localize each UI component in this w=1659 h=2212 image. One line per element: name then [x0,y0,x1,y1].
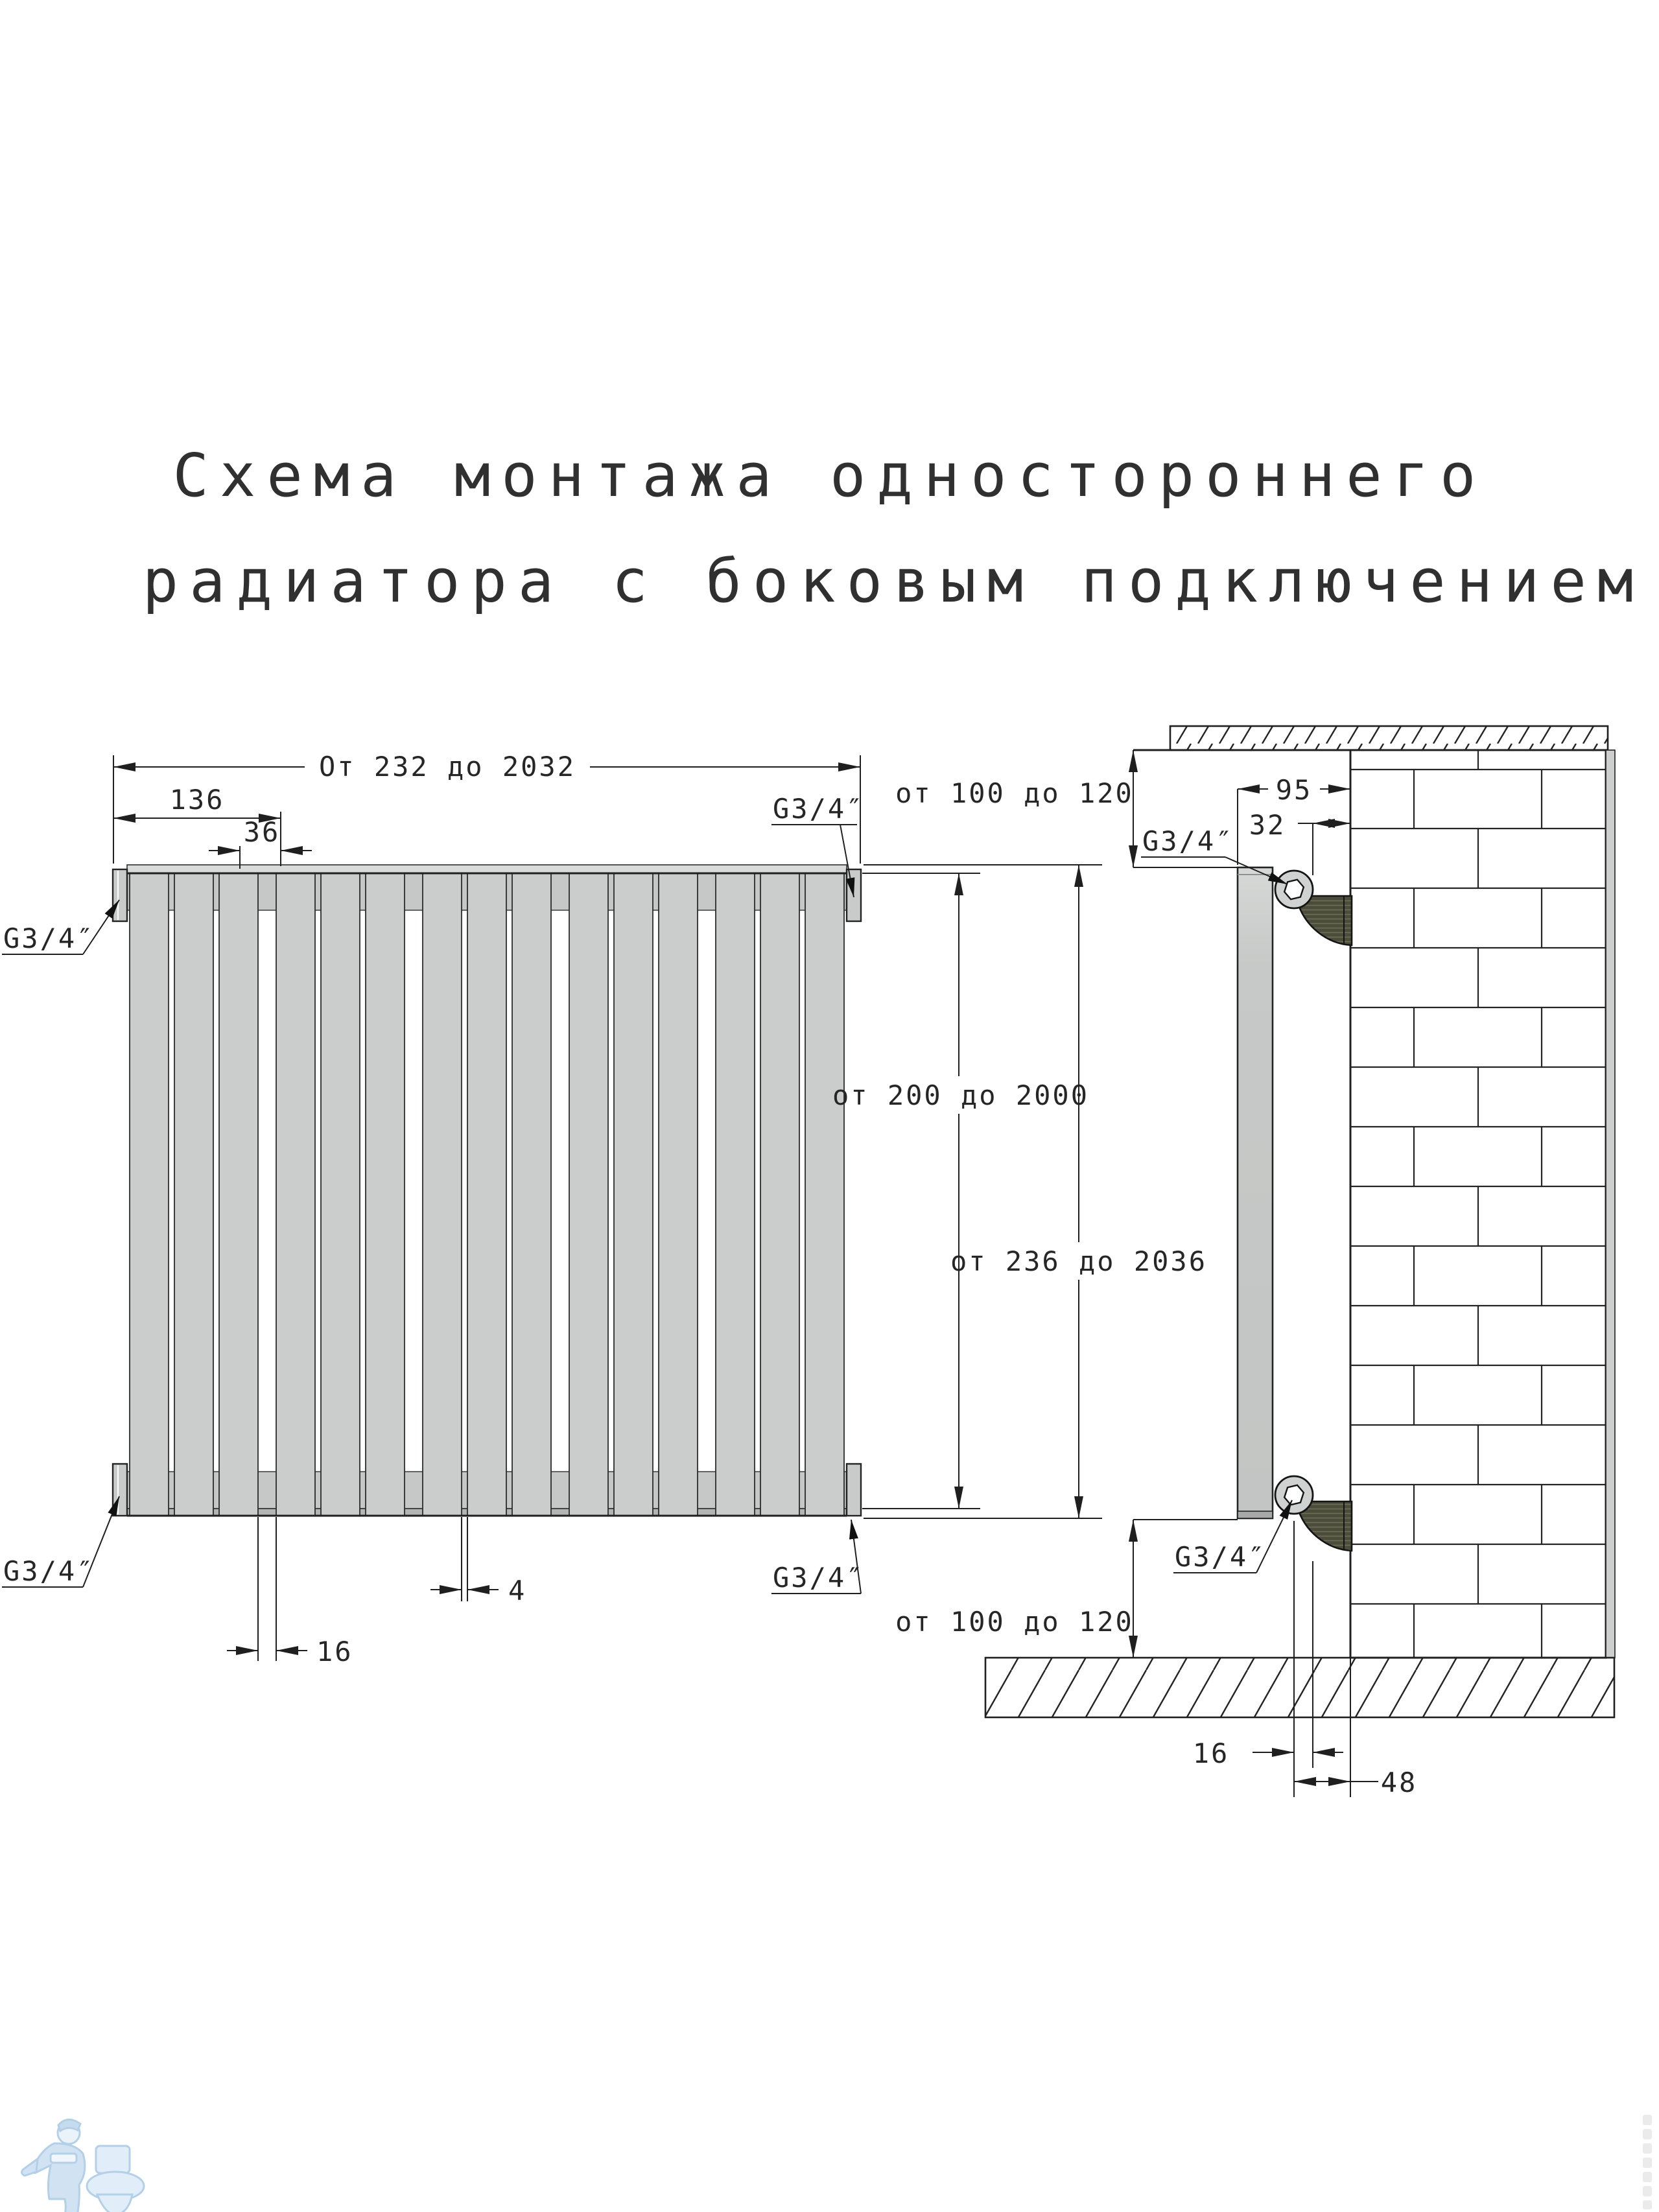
radiator-panels [130,873,844,1516]
dim-overall-width-label: От 232 до 2032 [319,751,576,782]
watermark-toilet-tank [96,2146,130,2173]
edge-watermark [1643,2115,1652,2209]
drawing-page: Схема монтажа одностороннего радиатора с… [0,0,1659,2212]
watermark-toilet-base [97,2194,132,2212]
conn-bottom-left-leader [83,1496,119,1587]
dim-axis48-label: 48 [1381,1767,1418,1798]
watermark-plumber-illustration [21,2119,144,2212]
dim-top-clearance-label: от 100 до 120 [895,777,1134,809]
conn-side-top-label: G3/4″ [1142,825,1234,857]
radiator-panel [512,873,551,1516]
dim-136-label: 136 [170,784,225,816]
radiator-panel [174,873,213,1516]
radiator-panel [130,873,169,1516]
radiator-top-band [127,865,847,873]
conn-top-right-label: G3/4″ [773,793,864,825]
side-view [985,726,1615,1717]
radiator-panel [614,873,653,1516]
radiator-panel [423,873,462,1516]
conn-bottom-right-label: G3/4″ [773,1562,864,1594]
dim-4-label: 4 [508,1575,526,1606]
radiator-panel [659,873,698,1516]
title-line-1: Схема монтажа одностороннего [173,441,1487,510]
watermark-plumber-belt [51,2154,76,2163]
radiator-panel [321,873,360,1516]
side-profile-bottom-band [1238,1511,1273,1518]
radiator-panel [219,873,258,1516]
front-view [113,865,861,1516]
dim-16-label: 16 [316,1636,353,1667]
installation-diagram: Схема монтажа одностороннего радиатора с… [0,0,1659,2212]
dim-36-label: 36 [244,816,281,848]
dim-32-label: 32 [1249,809,1286,841]
title-block: Схема монтажа одностороннего радиатора с… [143,441,1644,616]
fitting-bottom-right [847,1464,861,1516]
floor-hatch [985,1658,1614,1717]
wall-back-strip [1606,750,1615,1658]
radiator-panel [467,873,506,1516]
fitting-top-left [113,869,127,921]
watermark-plumber-wrench-arm [21,2159,38,2176]
dim-axis16-label: 16 [1193,1737,1230,1769]
radiator-panel [805,873,844,1516]
radiator-panel [366,873,405,1516]
radiator-panel [276,873,315,1516]
dim-bottom-clearance-label: от 100 до 120 [895,1606,1134,1638]
radiator-panel [569,873,608,1516]
conn-side-bottom-label: G3/4″ [1175,1541,1266,1573]
radiator-panel [760,873,799,1516]
title-line-2: радиатора с боковым подключением [143,547,1644,616]
conn-top-left-label: G3/4″ [3,923,95,954]
radiator-panel [716,873,755,1516]
dim-panel-height-label: от 200 до 2000 [832,1079,1089,1111]
dim-95-label: 95 [1276,774,1313,806]
dim-overall-height-label: от 236 до 2036 [950,1245,1207,1277]
ceiling-hatch [1170,726,1608,750]
conn-bottom-left-label: G3/4″ [3,1555,95,1587]
radiator-side-profile [1238,867,1273,1518]
